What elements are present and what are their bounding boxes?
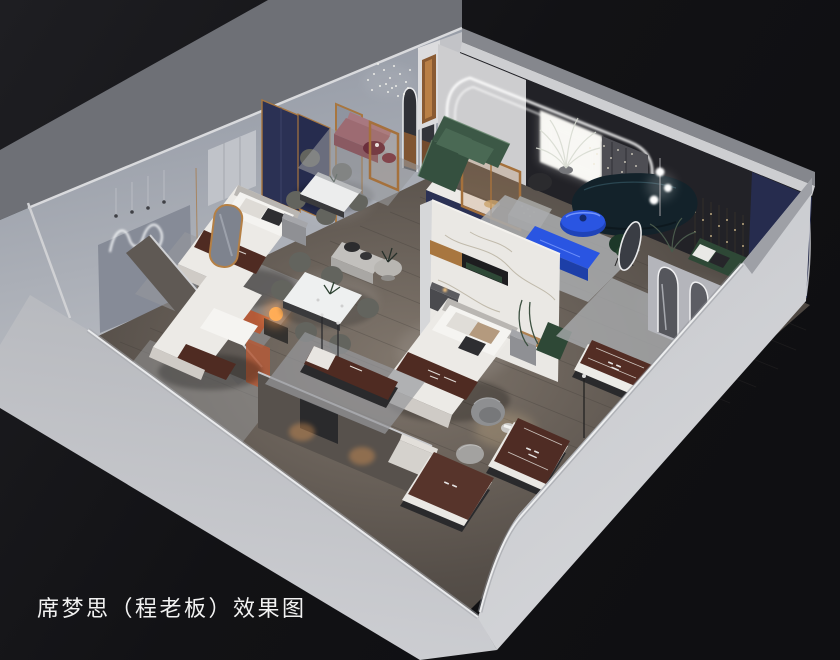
caption-title: 席梦思（程老板）效果图 [37,591,307,623]
dark-armchair [528,173,552,191]
blue-oval-coffee-table [560,210,606,237]
interior-render-svg [0,0,840,660]
render-canvas: 席梦思（程老板）效果图 [0,0,840,660]
